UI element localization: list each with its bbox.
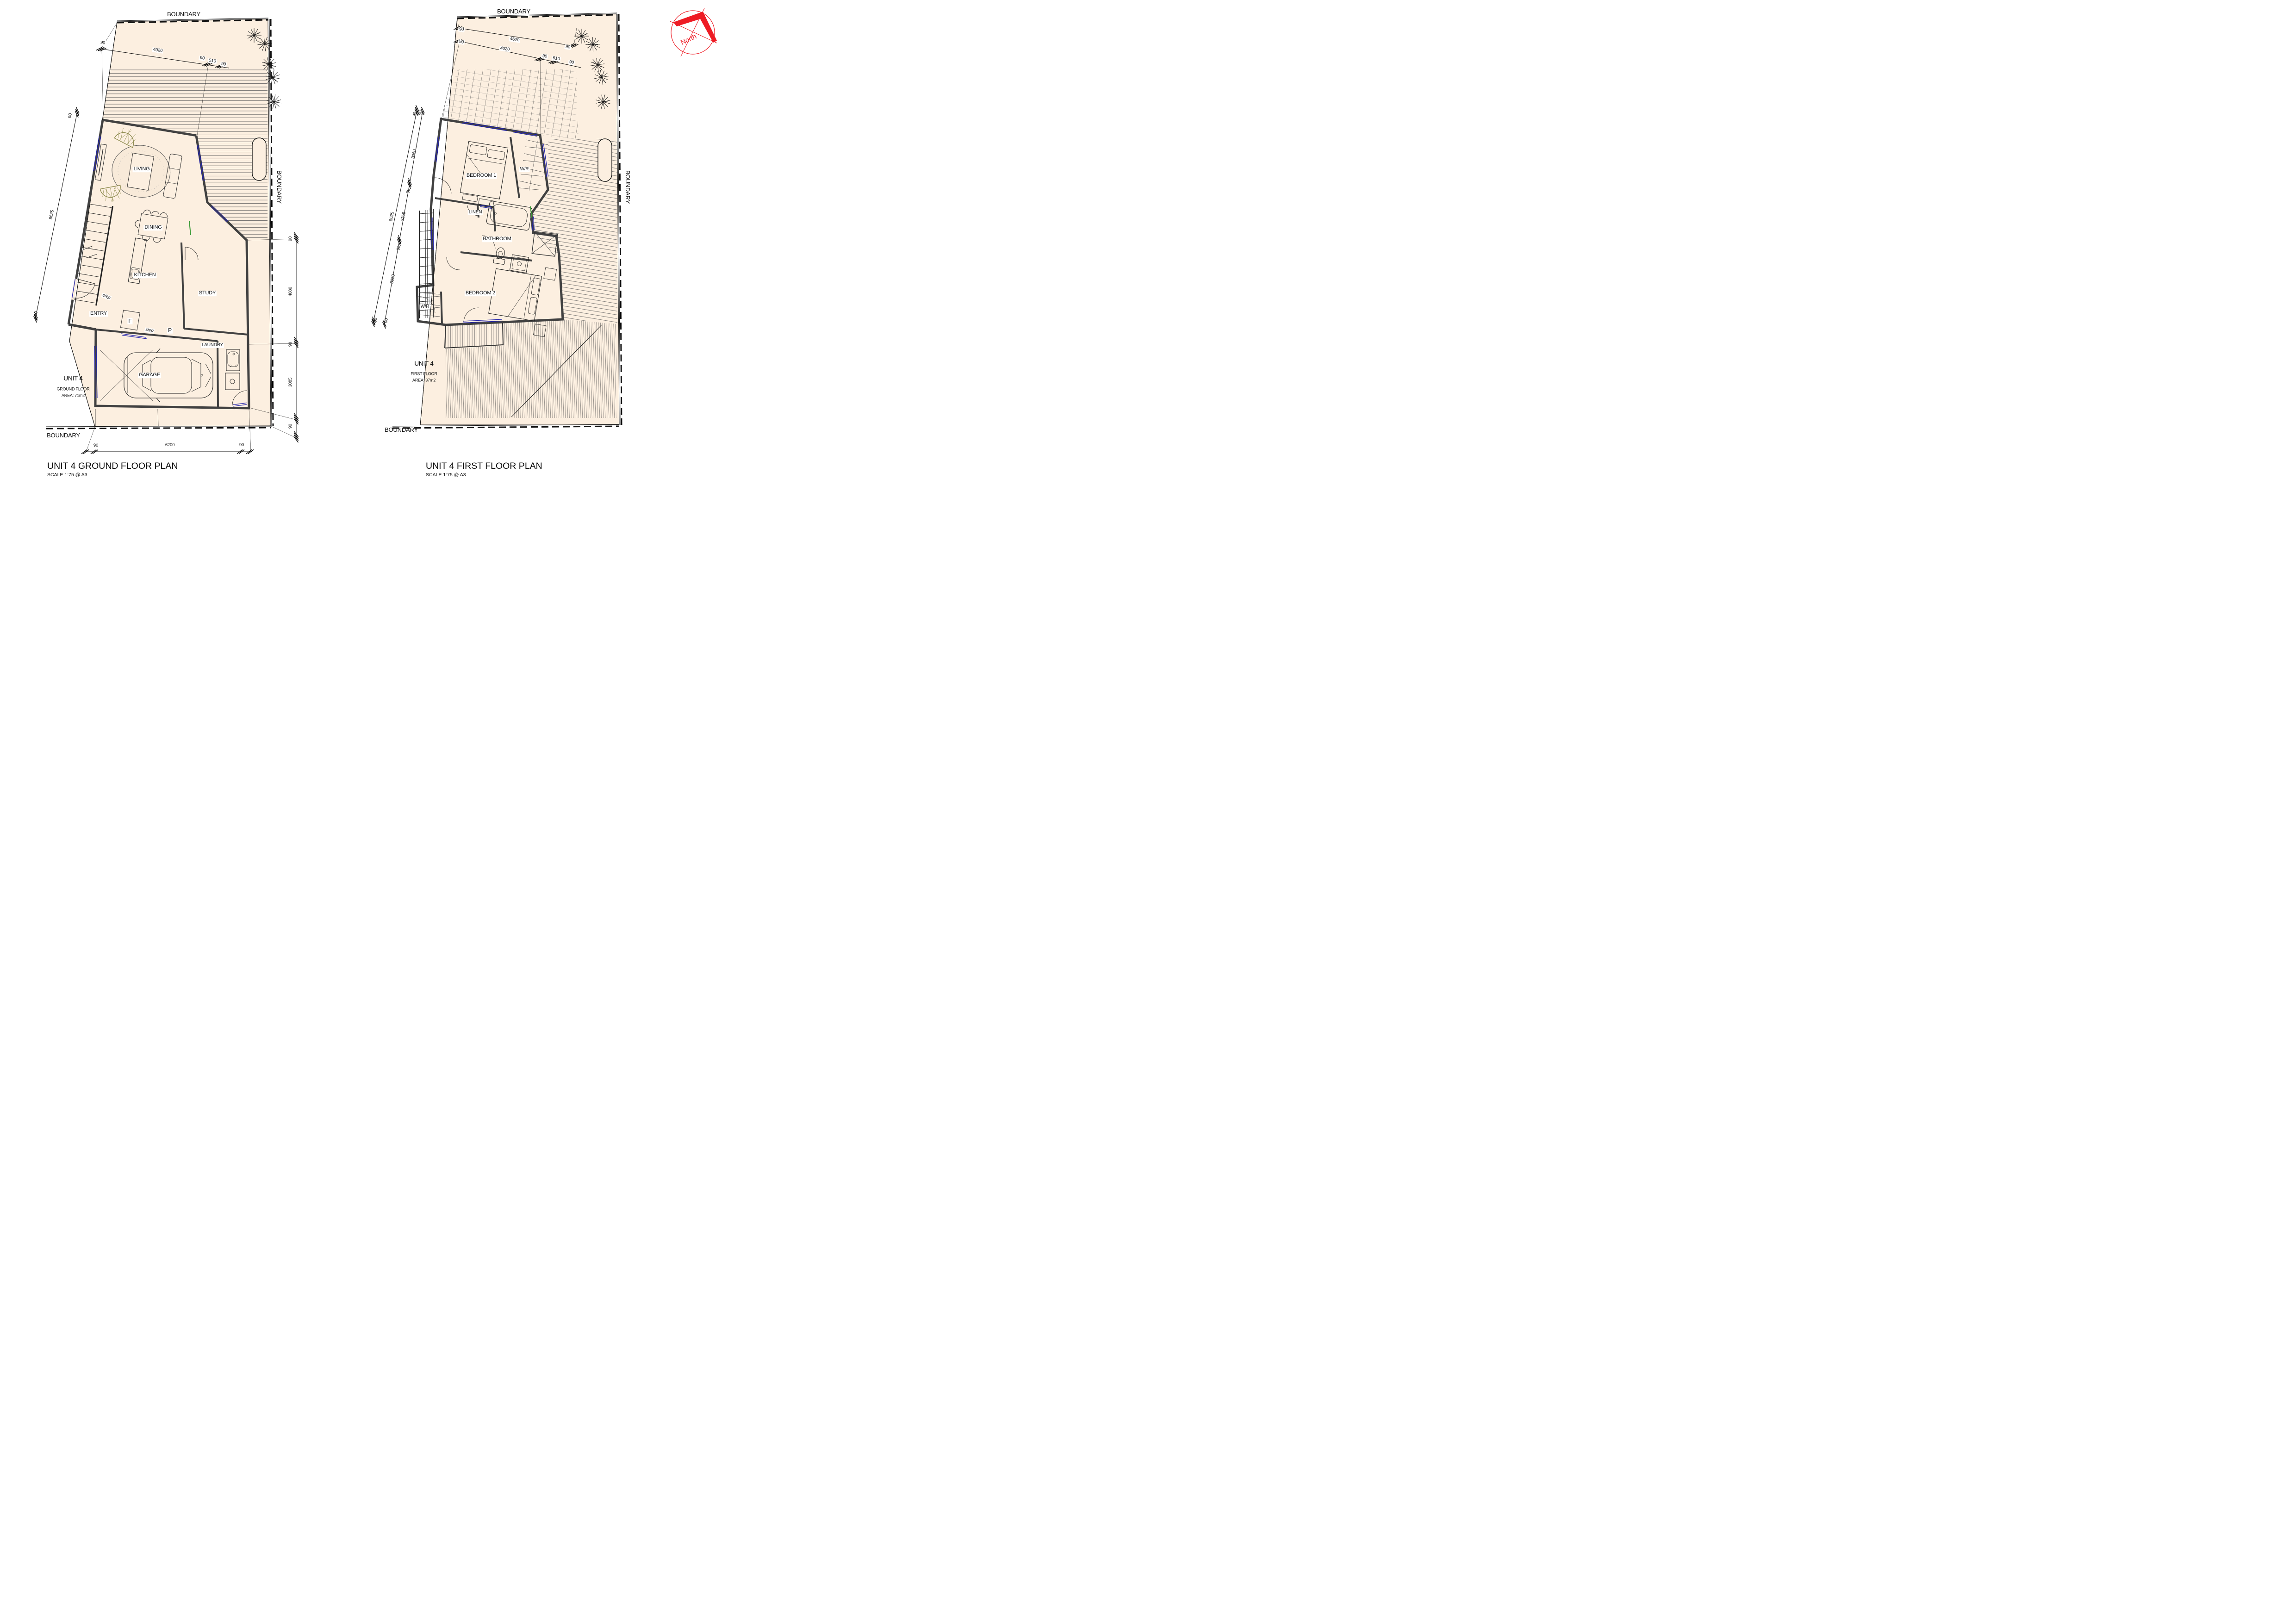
ground-floor-title: UNIT 4 GROUND FLOOR PLAN xyxy=(47,461,178,472)
ground-floor-scale: SCALE 1:75 @ A3 xyxy=(47,472,87,478)
gp-room-living: LIVING xyxy=(133,167,151,172)
gp-dim-bottom-90-b: 90 xyxy=(238,443,245,448)
tank-icon xyxy=(598,139,612,181)
fp-code-wr2: W/R xyxy=(420,305,430,310)
gp-unit-name: UNIT 4 xyxy=(62,375,83,382)
gp-dim-right-4080: 4080 xyxy=(288,286,293,297)
gp-unit-floor: GROUND FLOOR xyxy=(56,387,90,391)
fp-room-linen: LINEN xyxy=(468,210,483,215)
gp-dim-right-90-a: 90 xyxy=(288,236,293,242)
fp-room-bedroom1: BEDROOM 1 xyxy=(466,173,497,179)
gp-dim-top-90-b: 90 xyxy=(199,56,206,61)
gp-dim-right-3085: 3085 xyxy=(288,377,293,388)
fp-room-bathroom: BATHROOM xyxy=(482,236,512,242)
fp-boundary-bottom: BOUNDARY xyxy=(384,427,419,433)
gp-dim-bottom-6200: 6200 xyxy=(164,443,175,448)
gp-boundary-top: BOUNDARY xyxy=(166,11,201,18)
first-floor-scale: SCALE 1:75 @ A3 xyxy=(426,472,466,478)
gp-code-p: P xyxy=(167,328,173,334)
gp-boundary-bottom: BOUNDARY xyxy=(46,432,81,439)
floor-plan-sheet: BOUNDARYBOUNDARYBOUNDARY9086259090402090… xyxy=(0,0,726,513)
fp-unit-area: AREA: 37m2 xyxy=(411,378,436,382)
gp-dim-right-90-b: 90 xyxy=(288,341,293,348)
gp-unit-area: AREA: 71m2 xyxy=(61,393,86,398)
gp-room-laundry: LAUNDRY xyxy=(201,343,224,348)
fp-code-wr1: W/R xyxy=(519,167,530,172)
gp-dim-right-90-c: 90 xyxy=(288,423,293,429)
first-floor-title: UNIT 4 FIRST FLOOR PLAN xyxy=(426,461,542,472)
tank-icon xyxy=(252,138,266,180)
gp-room-kitchen: KITCHEN xyxy=(133,273,157,278)
fp-room-bedroom2: BEDROOM 2 xyxy=(465,291,496,296)
gp-room-study: STUDY xyxy=(198,291,217,296)
gp-room-garage: GARAGE xyxy=(138,373,161,378)
gp-dim-bottom-90-a: 90 xyxy=(93,443,99,448)
gp-room-entry: ENTRY xyxy=(89,311,108,317)
gp-code-f: F xyxy=(127,318,132,324)
fp-unit-floor: FIRST FLOOR xyxy=(410,372,438,376)
fp-dim-top1-90-a: 90 xyxy=(458,27,465,32)
gp-dim-top-90-c: 90 xyxy=(220,62,227,67)
fp-dim-top2-90-a: 90 xyxy=(458,39,465,45)
fp-dim-top2-90-c: 90 xyxy=(568,60,575,65)
fp-boundary-right: BOUNDARY xyxy=(624,169,631,205)
gp-boundary-right: BOUNDARY xyxy=(276,169,282,205)
fp-dim-top2-90-b: 90 xyxy=(541,54,548,59)
gp-room-dining: DINING xyxy=(143,225,162,230)
fp-boundary-top: BOUNDARY xyxy=(496,8,531,15)
plan-drawing xyxy=(0,0,726,513)
fp-dim-top1-90-b: 90 xyxy=(564,44,572,50)
first-balcony-hatch xyxy=(445,322,503,348)
fp-unit-name: UNIT 4 xyxy=(413,361,434,367)
gp-dim-top-90-a: 90 xyxy=(99,40,106,46)
